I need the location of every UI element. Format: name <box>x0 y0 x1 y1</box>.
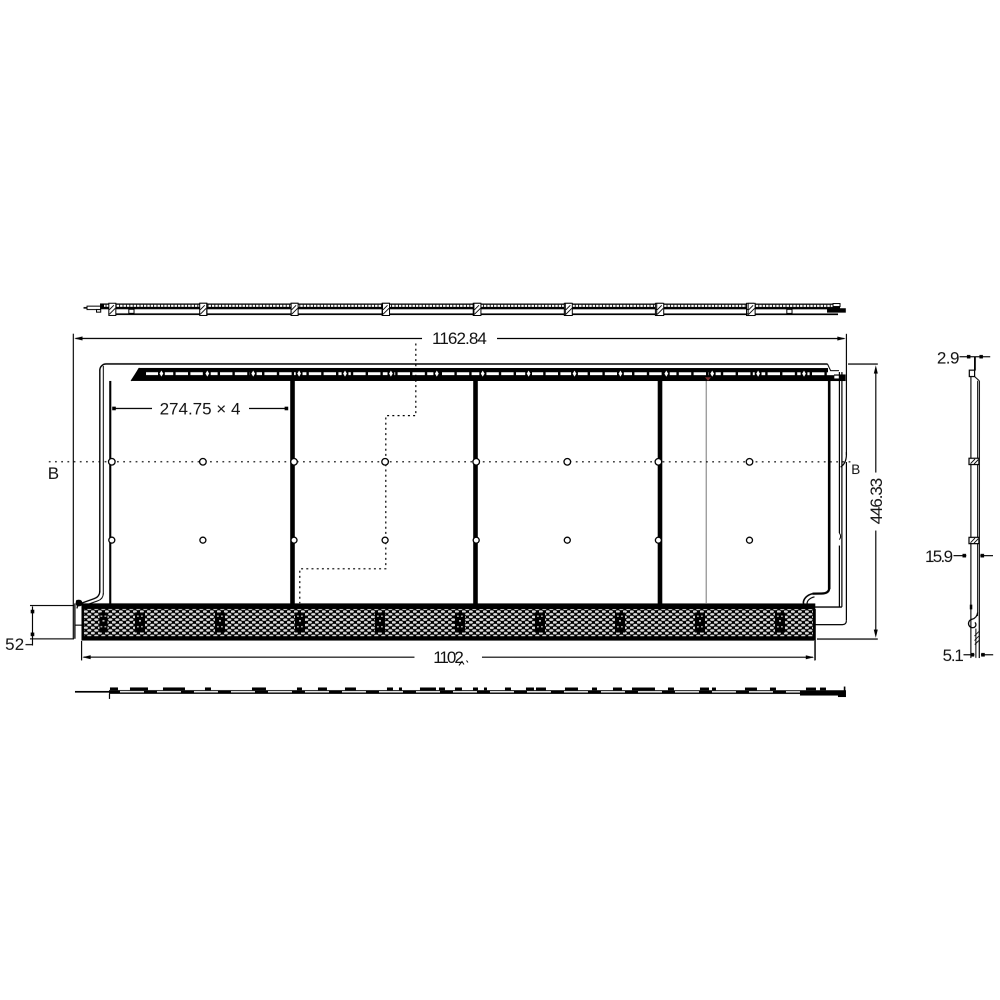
svg-text:15.9: 15.9 <box>925 547 953 566</box>
svg-text:5.1: 5.1 <box>943 646 964 665</box>
svg-text:446.33: 446.33 <box>867 478 886 524</box>
svg-text:B: B <box>48 464 59 483</box>
svg-text:52: 52 <box>5 635 24 654</box>
svg-text:1102: 1102 <box>433 648 463 667</box>
svg-text:B: B <box>851 462 860 477</box>
svg-text:274.75 × 4: 274.75 × 4 <box>160 399 241 418</box>
svg-text:2.9: 2.9 <box>937 348 959 367</box>
svg-text:1162.84: 1162.84 <box>432 329 486 348</box>
